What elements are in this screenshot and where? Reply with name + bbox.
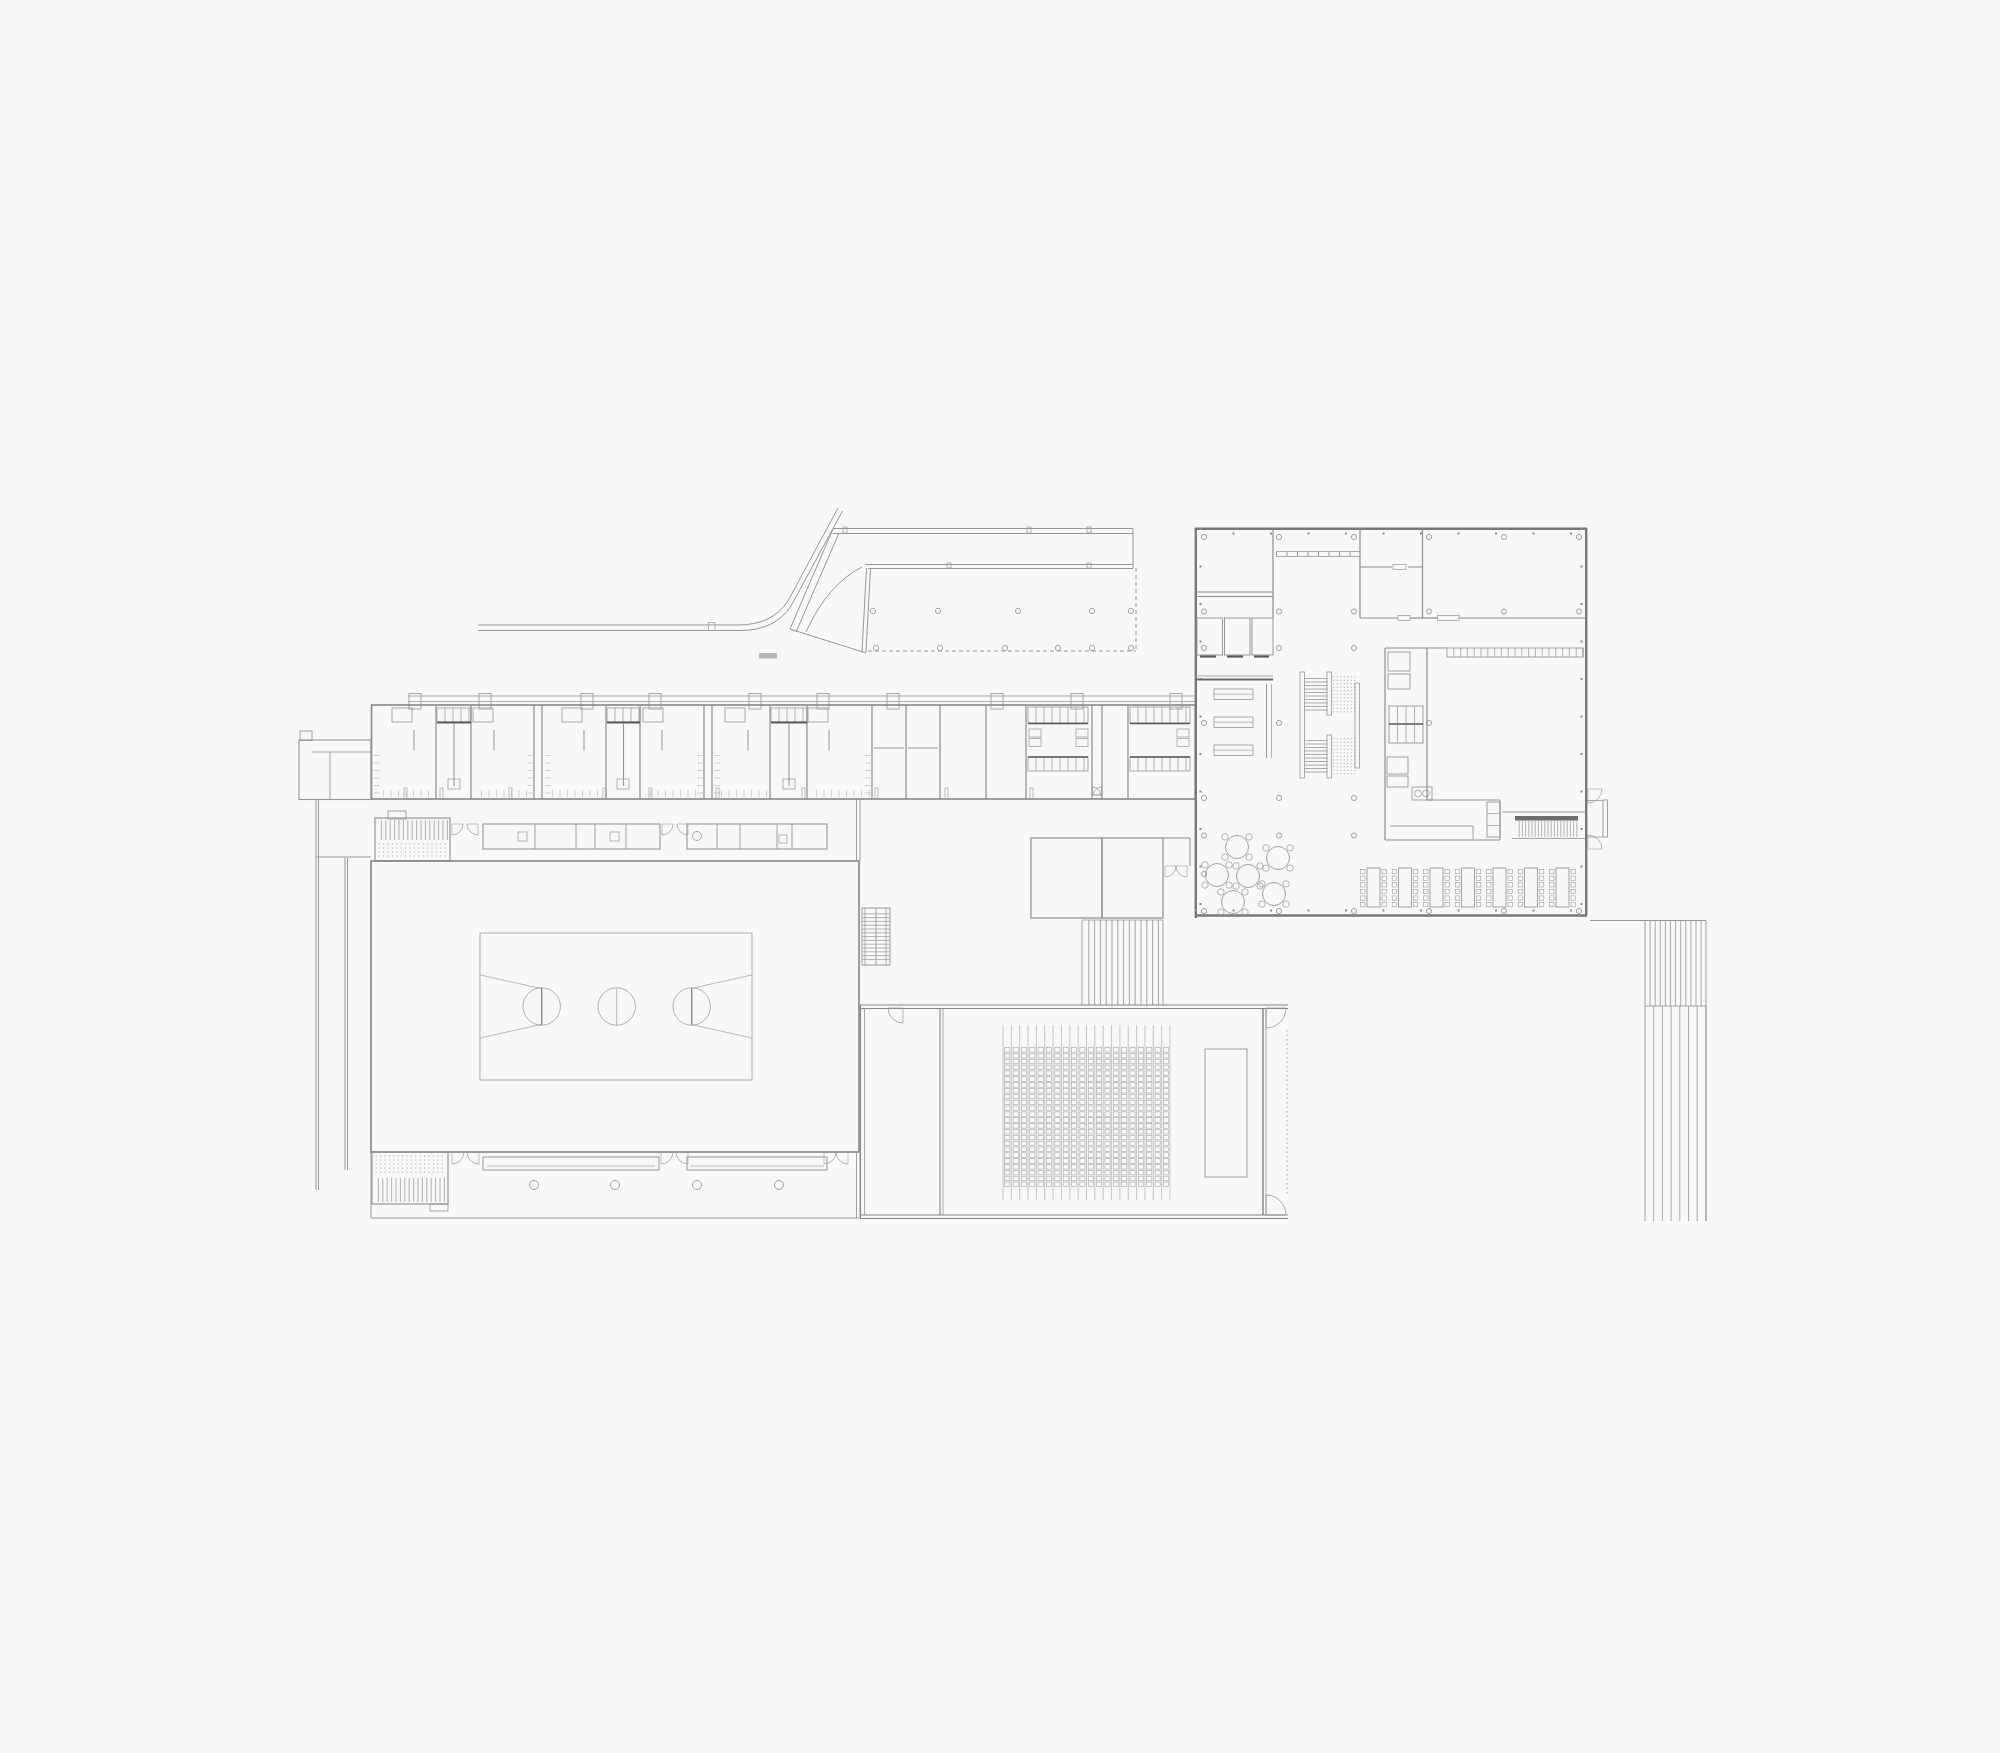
- annex-room-east: [1102, 838, 1163, 918]
- changing-rooms: [375, 811, 827, 861]
- main-building: [1195, 528, 1608, 918]
- classroom-wing: [299, 694, 1196, 800]
- southwest-stair: [372, 1152, 448, 1204]
- terrace-tables: [1222, 834, 1252, 861]
- floor-plan: [0, 0, 2000, 1753]
- auditorium: [860, 1005, 1288, 1219]
- basketball-court: [480, 933, 752, 1080]
- stage: [1205, 1049, 1247, 1177]
- gym-hall: [371, 861, 859, 1152]
- south-terrace: [371, 1152, 859, 1218]
- main-stairs: [1300, 672, 1305, 778]
- dining-tables: [1367, 868, 1380, 907]
- retaining-walls: [316, 800, 371, 1190]
- side-entrance-stair: [1515, 816, 1578, 821]
- site-entry: [478, 508, 1136, 659]
- annex-room-west: [1031, 838, 1102, 918]
- floor-plan-canvas: [0, 0, 2000, 1753]
- wing-outline: [372, 705, 1196, 799]
- gymnasium: [371, 861, 859, 1152]
- east-ramp: [1590, 921, 1706, 1222]
